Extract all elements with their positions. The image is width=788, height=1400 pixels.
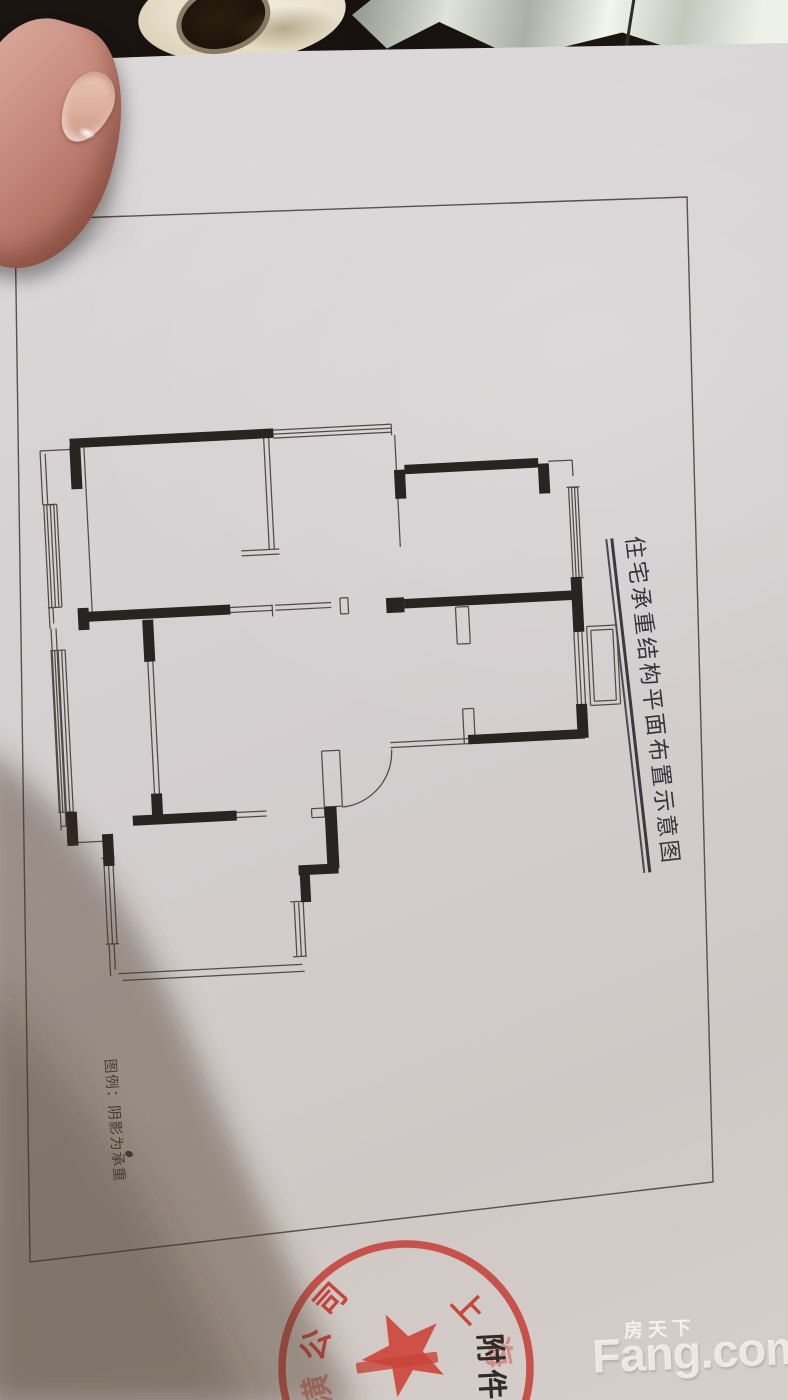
stamp-char: 公 [295,1325,337,1364]
attachment-note: 附件 [470,1332,518,1400]
photo-of-document: 司 公 潢 上 海 住宅承重结构平面布置示意图 图例：阴影为承重 附件 房天下 … [0,0,788,1400]
watermark: 房天下 Fang.com [591,1319,788,1383]
plan-load-bearing-walls [53,418,594,914]
floor-plan [40,413,634,983]
stamp-char: 上 [445,1284,492,1331]
plan-thin-walls [40,413,634,983]
stamp-char: 潢 [297,1371,338,1400]
watermark-cn: 房天下 [623,1313,696,1343]
